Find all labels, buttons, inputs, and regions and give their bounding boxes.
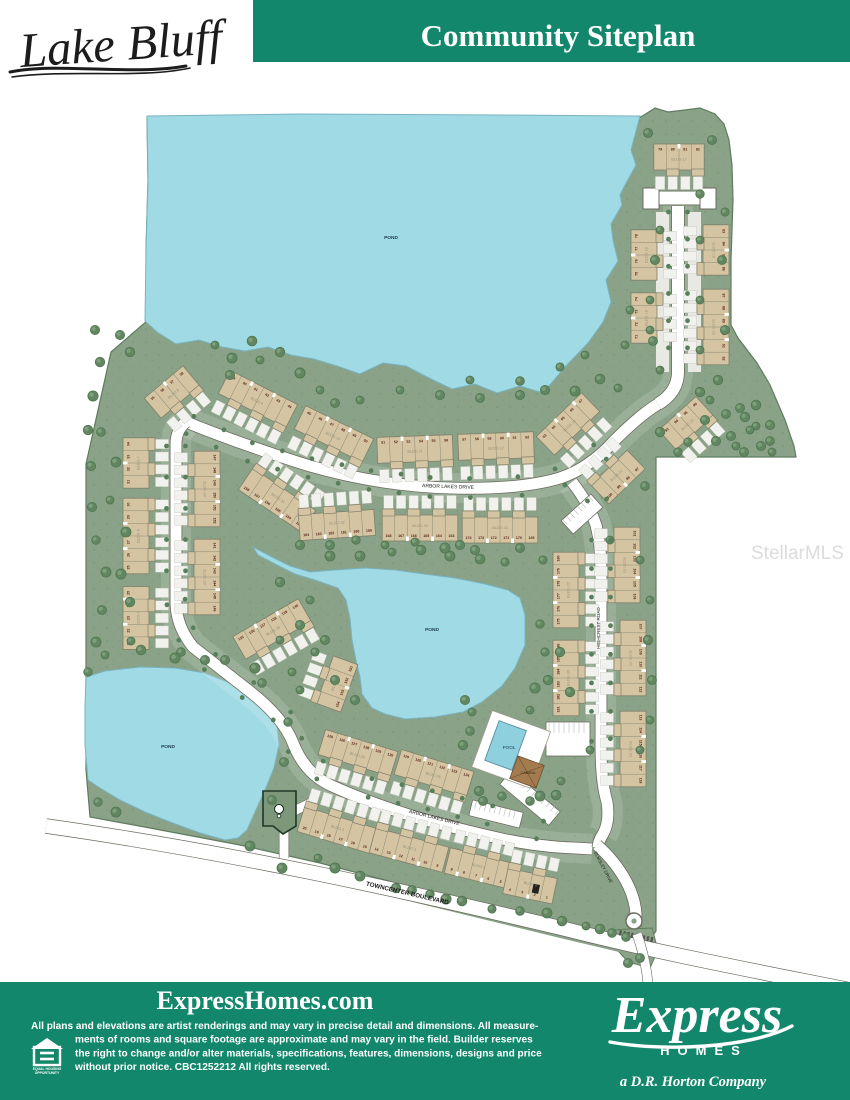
svg-text:165: 165 xyxy=(423,534,429,538)
svg-text:25: 25 xyxy=(127,566,131,570)
svg-text:32: 32 xyxy=(127,467,131,471)
svg-text:159: 159 xyxy=(366,528,372,532)
svg-text:34: 34 xyxy=(127,442,131,446)
svg-text:142: 142 xyxy=(213,555,217,561)
svg-text:55: 55 xyxy=(432,439,436,443)
svg-text:151: 151 xyxy=(213,505,217,511)
svg-text:23: 23 xyxy=(127,616,131,620)
svg-text:30: 30 xyxy=(127,503,131,507)
svg-text:BLDG 11: BLDG 11 xyxy=(407,449,422,454)
svg-text:ments of rooms and square foot: ments of rooms and square footage are ap… xyxy=(75,1035,533,1046)
svg-text:112: 112 xyxy=(639,687,643,693)
svg-text:71: 71 xyxy=(635,335,639,339)
svg-text:27: 27 xyxy=(127,540,131,544)
svg-text:62: 62 xyxy=(525,435,529,439)
svg-text:88: 88 xyxy=(722,306,726,310)
svg-text:51: 51 xyxy=(381,441,385,445)
svg-text:a D.R. Horton Company: a D.R. Horton Company xyxy=(620,1074,767,1090)
svg-text:164: 164 xyxy=(436,534,442,538)
svg-text:26: 26 xyxy=(127,553,131,557)
svg-text:BLDG 33: BLDG 33 xyxy=(412,524,428,528)
svg-text:168: 168 xyxy=(386,534,392,538)
svg-text:106: 106 xyxy=(633,594,637,600)
svg-text:79: 79 xyxy=(658,148,662,152)
svg-text:160: 160 xyxy=(353,529,359,533)
svg-text:89: 89 xyxy=(722,319,726,323)
svg-text:84: 84 xyxy=(722,242,726,246)
svg-text:75: 75 xyxy=(635,272,639,276)
svg-text:33: 33 xyxy=(127,455,131,459)
svg-text:59: 59 xyxy=(487,437,491,441)
svg-text:BLDG 24: BLDG 24 xyxy=(629,741,633,757)
svg-text:87: 87 xyxy=(722,294,726,298)
svg-text:177: 177 xyxy=(557,593,561,599)
svg-text:111: 111 xyxy=(639,674,643,680)
svg-text:without prior notice. CBC12522: without prior notice. CBC1252212 All rig… xyxy=(74,1062,330,1073)
svg-text:57: 57 xyxy=(462,438,466,442)
svg-text:58: 58 xyxy=(475,437,479,441)
svg-text:184: 184 xyxy=(557,669,561,675)
svg-text:170: 170 xyxy=(516,536,522,540)
svg-text:Express: Express xyxy=(611,987,782,1044)
svg-text:77: 77 xyxy=(635,247,639,251)
svg-text:86: 86 xyxy=(722,267,726,271)
svg-text:183: 183 xyxy=(557,681,561,687)
svg-text:107: 107 xyxy=(639,624,643,630)
svg-text:149: 149 xyxy=(213,480,217,486)
svg-text:POND: POND xyxy=(384,235,398,241)
svg-text:117: 117 xyxy=(639,765,643,771)
svg-text:143: 143 xyxy=(213,568,217,574)
svg-text:171: 171 xyxy=(503,536,509,540)
svg-text:167: 167 xyxy=(398,534,404,538)
svg-text:161: 161 xyxy=(341,530,347,534)
svg-text:BLDG 30: BLDG 30 xyxy=(567,670,571,686)
svg-text:BLDG 19: BLDG 19 xyxy=(712,242,716,258)
svg-text:182: 182 xyxy=(557,694,561,700)
svg-text:114: 114 xyxy=(639,727,643,733)
svg-text:180: 180 xyxy=(557,556,561,562)
svg-text:BLDG 12: BLDG 12 xyxy=(488,446,504,451)
svg-text:POOL: POOL xyxy=(503,745,516,750)
svg-text:179: 179 xyxy=(557,568,561,574)
svg-text:OPPORTUNITY: OPPORTUNITY xyxy=(35,1071,60,1075)
svg-text:162: 162 xyxy=(328,531,334,535)
svg-text:91: 91 xyxy=(722,344,726,348)
svg-text:163: 163 xyxy=(449,534,455,538)
svg-text:the right to change and/or alt: the right to change and/or alter materia… xyxy=(75,1048,542,1059)
svg-text:BLDG 19: BLDG 19 xyxy=(712,319,716,335)
svg-text:72: 72 xyxy=(635,322,639,326)
svg-text:BLDG 18: BLDG 18 xyxy=(645,310,649,326)
svg-text:108: 108 xyxy=(639,636,643,642)
svg-text:104: 104 xyxy=(633,568,637,574)
svg-text:31: 31 xyxy=(127,480,131,484)
svg-text:145: 145 xyxy=(213,593,217,599)
svg-text:25: 25 xyxy=(127,591,131,595)
svg-text:150: 150 xyxy=(213,492,217,498)
svg-text:169: 169 xyxy=(529,536,535,540)
svg-text:CABANA: CABANA xyxy=(521,771,536,775)
svg-text:152: 152 xyxy=(213,518,217,524)
svg-text:101: 101 xyxy=(633,531,637,537)
svg-text:BLDG 30: BLDG 30 xyxy=(203,481,207,497)
svg-text:163: 163 xyxy=(316,532,322,536)
svg-text:BLDG 22: BLDG 22 xyxy=(567,582,571,598)
svg-text:BLDG 23: BLDG 23 xyxy=(629,650,633,666)
svg-text:74: 74 xyxy=(635,297,639,301)
svg-text:92: 92 xyxy=(722,357,726,361)
svg-text:181: 181 xyxy=(557,707,561,713)
svg-text:52: 52 xyxy=(394,440,398,444)
svg-text:80: 80 xyxy=(671,148,675,152)
svg-text:29: 29 xyxy=(127,515,131,519)
svg-text:StellarMLS: StellarMLS xyxy=(751,543,844,564)
svg-text:81: 81 xyxy=(683,148,687,152)
svg-text:82: 82 xyxy=(696,148,700,152)
svg-text:POND: POND xyxy=(425,627,439,633)
svg-text:POND: POND xyxy=(161,744,175,750)
svg-text:174: 174 xyxy=(466,536,472,540)
svg-text:All plans and elevations are a: All plans and elevations are artist rend… xyxy=(31,1021,538,1032)
svg-text:83: 83 xyxy=(722,229,726,233)
svg-text:141: 141 xyxy=(213,543,217,549)
svg-text:60: 60 xyxy=(500,436,504,440)
svg-text:73: 73 xyxy=(635,310,639,314)
svg-text:175: 175 xyxy=(557,619,561,625)
svg-text:115: 115 xyxy=(639,740,643,746)
svg-text:109: 109 xyxy=(639,649,643,655)
svg-text:53: 53 xyxy=(406,440,410,444)
svg-text:172: 172 xyxy=(491,536,497,540)
svg-text:178: 178 xyxy=(557,581,561,587)
svg-text:164: 164 xyxy=(303,533,309,537)
svg-text:HOMES: HOMES xyxy=(660,1043,748,1058)
svg-text:56: 56 xyxy=(444,438,448,442)
svg-text:78: 78 xyxy=(635,234,639,238)
svg-text:ExpressHomes.com: ExpressHomes.com xyxy=(157,986,374,1015)
svg-text:173: 173 xyxy=(478,536,484,540)
svg-text:148: 148 xyxy=(213,467,217,473)
svg-text:BLDG 29: BLDG 29 xyxy=(203,569,207,585)
svg-text:110: 110 xyxy=(639,661,643,667)
svg-text:144: 144 xyxy=(213,580,217,586)
svg-text:147: 147 xyxy=(213,455,217,461)
svg-text:BLDG 5: BLDG 5 xyxy=(137,611,141,625)
svg-text:HIGHCREST ROAD: HIGHCREST ROAD xyxy=(596,607,601,649)
svg-text:176: 176 xyxy=(557,606,561,612)
svg-text:BLDG 23: BLDG 23 xyxy=(623,557,627,573)
svg-text:118: 118 xyxy=(639,778,643,784)
svg-text:BLDG 17: BLDG 17 xyxy=(671,158,687,162)
svg-text:61: 61 xyxy=(513,436,517,440)
svg-text:146: 146 xyxy=(213,606,217,612)
svg-text:105: 105 xyxy=(633,581,637,587)
svg-text:102: 102 xyxy=(633,543,637,549)
svg-text:BLDG 6: BLDG 6 xyxy=(137,529,141,543)
svg-text:BLDG 34: BLDG 34 xyxy=(492,526,508,530)
svg-text:113: 113 xyxy=(639,715,643,721)
svg-text:22: 22 xyxy=(127,629,131,633)
svg-text:BLDG 7: BLDG 7 xyxy=(137,456,141,470)
svg-text:76: 76 xyxy=(635,259,639,263)
svg-text:Community Siteplan: Community Siteplan xyxy=(421,18,696,53)
svg-text:BLDG 18: BLDG 18 xyxy=(645,247,649,263)
svg-text:54: 54 xyxy=(419,439,423,443)
svg-text:166: 166 xyxy=(411,534,417,538)
